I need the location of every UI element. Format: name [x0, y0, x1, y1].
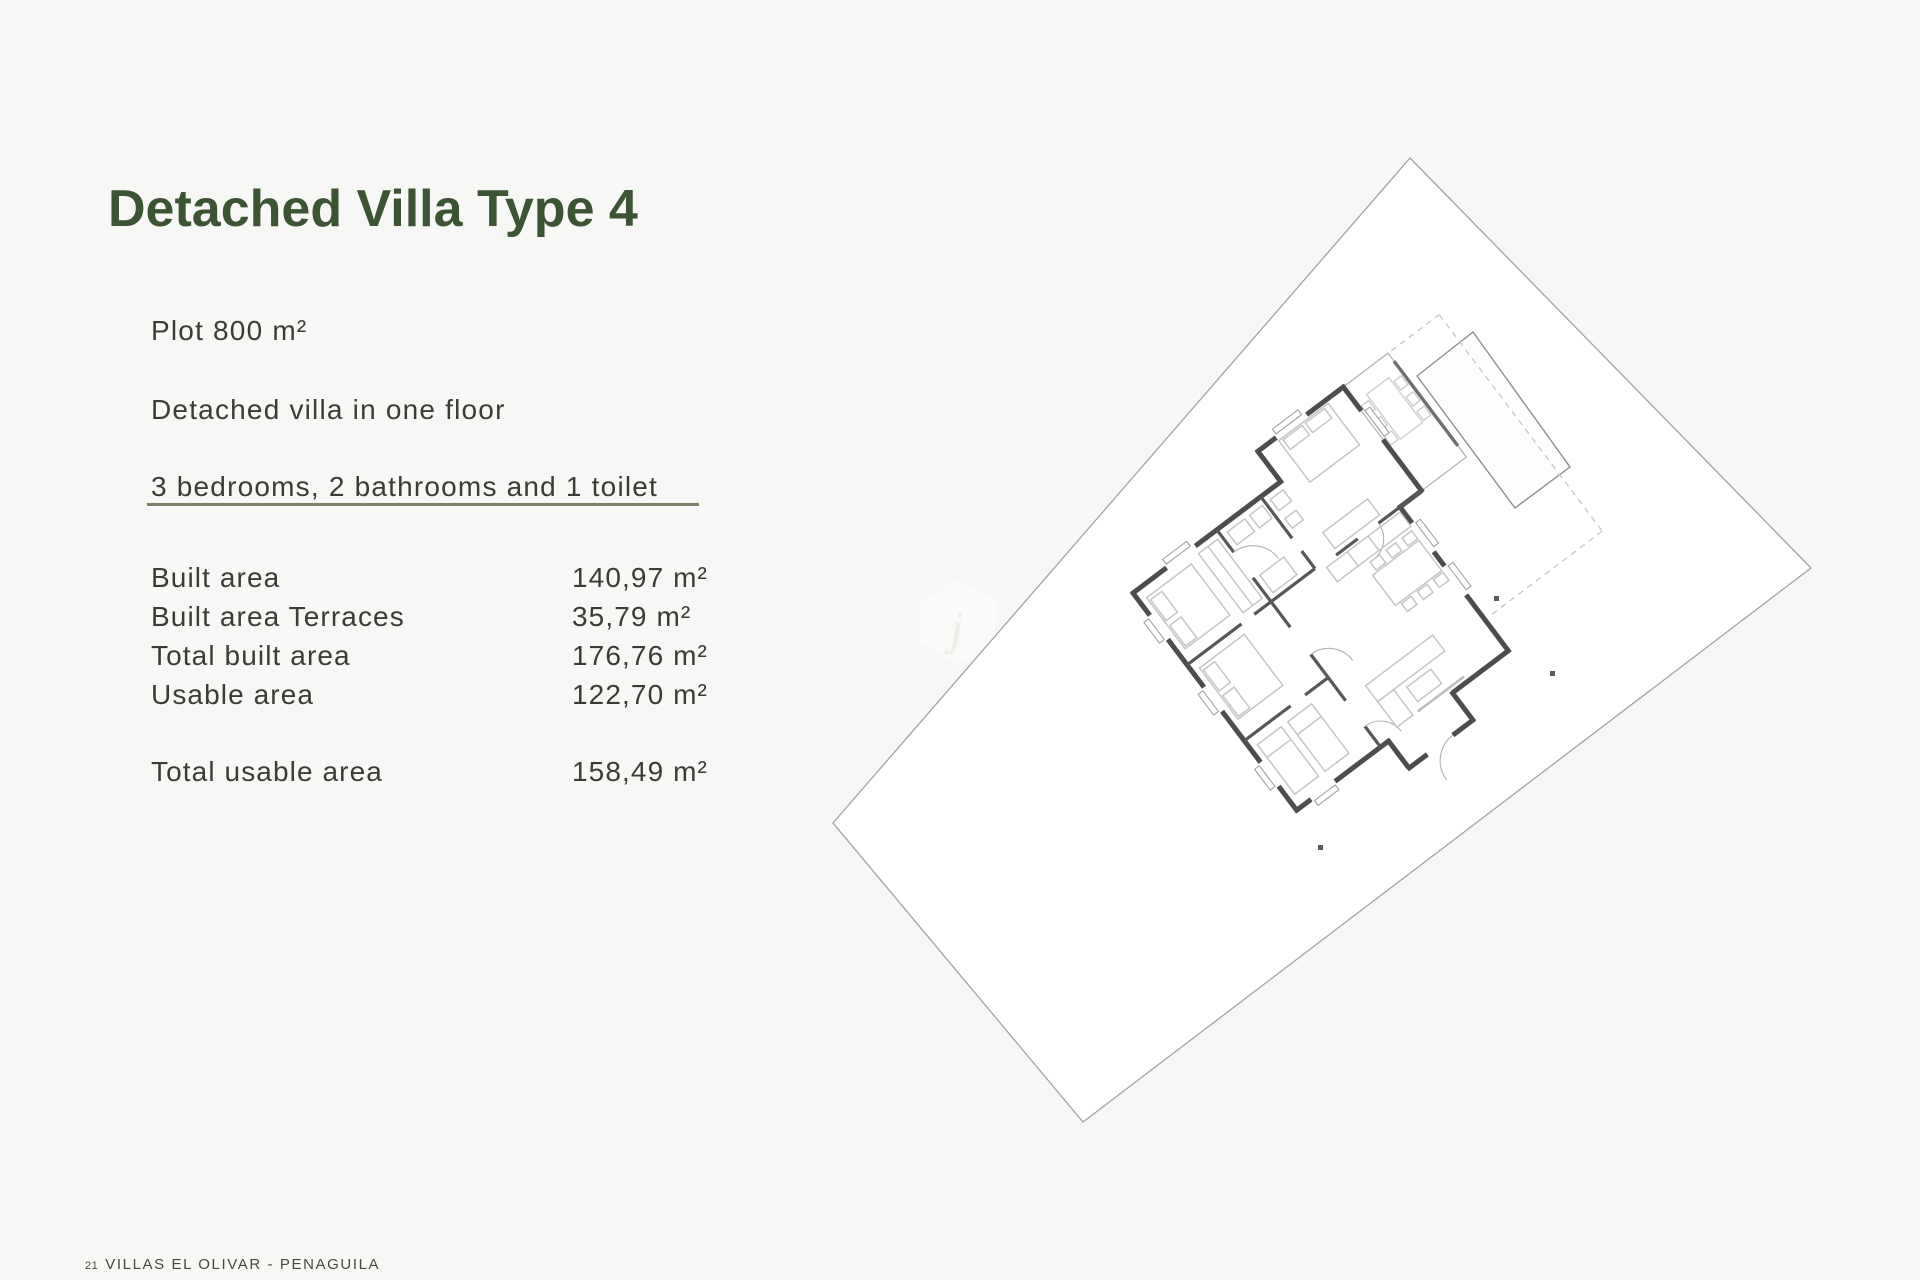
brochure-page: Detached Villa Type 4 Plot 800 m² Detach…: [0, 0, 1920, 1280]
site-plan-drawing: j: [0, 0, 1920, 1280]
